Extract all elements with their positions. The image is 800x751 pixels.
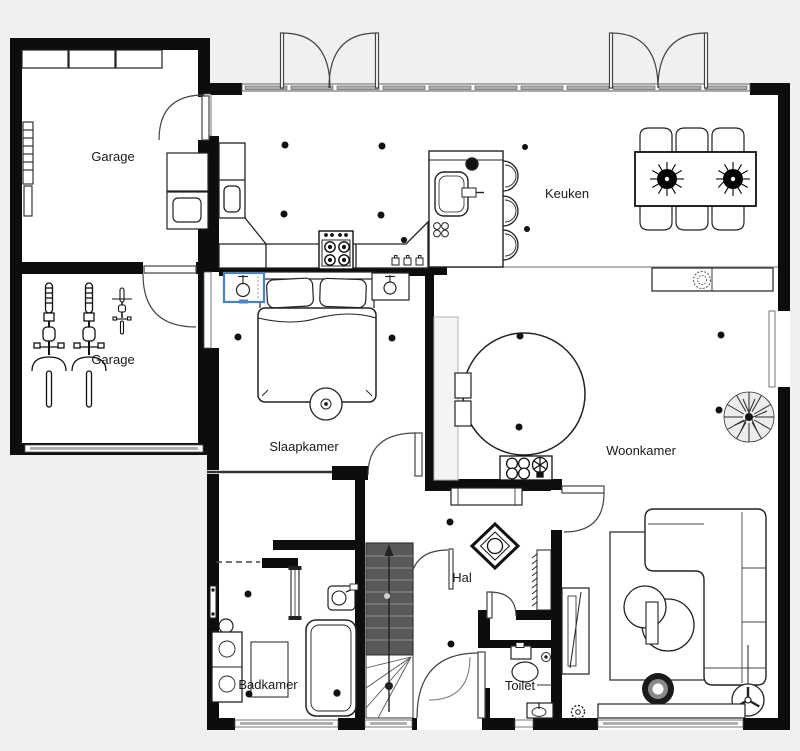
tv-cabinet[interactable] (562, 588, 589, 674)
lamp-icon (237, 284, 250, 297)
nightstand[interactable] (372, 273, 409, 300)
selection-handle[interactable] (239, 300, 248, 304)
potted-plant-icon[interactable] (724, 392, 774, 442)
room-label-woonkamer: Woonkamer (606, 443, 677, 458)
tv-lowboard[interactable] (598, 704, 745, 718)
pillow (266, 278, 313, 308)
ladder[interactable] (23, 122, 33, 216)
pillow (320, 278, 367, 308)
toilet-paper-holder-icon (542, 653, 551, 662)
toilet-sink[interactable] (527, 703, 553, 718)
room-label-garage-bottom: Garage (91, 352, 134, 367)
round-rug[interactable] (463, 333, 585, 455)
sideboard[interactable] (652, 268, 773, 291)
faucet-icon (466, 158, 478, 170)
hall-sideboard[interactable] (451, 488, 522, 505)
bathtub[interactable] (306, 620, 356, 716)
dining-set[interactable] (635, 128, 756, 230)
garage-storage-cabinets[interactable] (167, 153, 208, 229)
shower-rail[interactable] (210, 586, 216, 618)
garage-wall-shelves[interactable] (22, 50, 162, 68)
towel-radiator[interactable] (289, 566, 302, 620)
blanket (258, 308, 376, 402)
room-label-keuken: Keuken (545, 186, 589, 201)
room-label-garage-top: Garage (91, 149, 134, 164)
floor-plan-canvas[interactable]: Garage Garage Keuken Slaapkamer Woonkame… (0, 0, 800, 751)
garage-floor (10, 38, 210, 455)
media-wall[interactable] (434, 317, 458, 480)
lamp-icon (384, 282, 396, 294)
drain-icon (334, 690, 340, 696)
room-label-toilet: Toilet (505, 678, 536, 693)
bedroom-stool[interactable] (310, 388, 342, 420)
kitchen-island-with-sink[interactable] (429, 151, 503, 267)
floor-plan-page: Garage Garage Keuken Slaapkamer Woonkame… (0, 0, 800, 751)
pouf[interactable] (642, 673, 674, 705)
stove[interactable] (319, 231, 353, 269)
room-label-hal: Hal (452, 570, 472, 585)
stairs[interactable] (366, 543, 413, 718)
room-label-slaapkamer: Slaapkamer (269, 439, 339, 454)
side-table[interactable] (500, 456, 552, 480)
room-label-badkamer: Badkamer (238, 677, 298, 692)
nightstand-selected[interactable] (224, 273, 264, 304)
wall-sink[interactable] (328, 584, 358, 610)
